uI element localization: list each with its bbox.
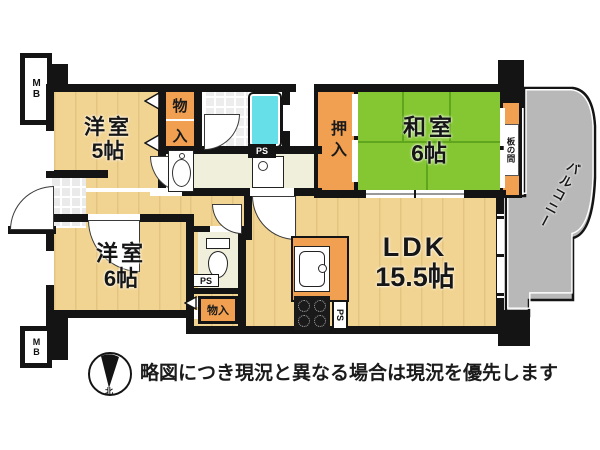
closet-monoiri-char1: 物	[166, 90, 194, 120]
washing-machine-icon	[252, 156, 284, 188]
washbasin-icon	[168, 150, 194, 192]
closet-monoiri-top: 物 入	[162, 86, 198, 154]
wall	[46, 84, 296, 92]
window-yoshitsu6	[46, 248, 54, 288]
entry-door-arc	[10, 186, 54, 230]
room-yoshitsu6-label: 洋室 6帖	[54, 222, 188, 312]
ps-shaft-bath: PS	[248, 144, 276, 158]
door-opening	[250, 188, 294, 196]
room-yoshitsu5-label: 洋室 5帖	[54, 92, 162, 188]
bathtub	[248, 92, 282, 148]
window-bathroom	[283, 102, 290, 134]
ps-shaft-kitchen: PS	[332, 300, 348, 330]
room-ldk-label: LDK 15.5帖	[330, 226, 500, 298]
disclaimer-text: 略図につき現況と異なる場合は現況を優先します	[140, 358, 580, 385]
ps-shaft-toilet: PS	[193, 274, 219, 287]
wall	[192, 288, 246, 294]
meter-box-bottom: MB	[20, 326, 52, 368]
room-washitsu-label: 和室 6帖	[354, 84, 504, 198]
itanoma-label: 板の間	[503, 124, 519, 176]
wall	[238, 226, 246, 334]
svg-text:北: 北	[105, 386, 113, 396]
compass-icon: 北	[86, 350, 134, 398]
window-yoshitsu5	[46, 128, 54, 174]
wall	[196, 84, 202, 154]
floorplan-canvas: バルコニー MB MB 物 入 押入 板の間	[0, 0, 600, 450]
closet-monoiri-bottom: 物入	[198, 296, 238, 324]
stove-icon	[294, 296, 330, 330]
kitchen-sink-icon	[294, 246, 330, 292]
